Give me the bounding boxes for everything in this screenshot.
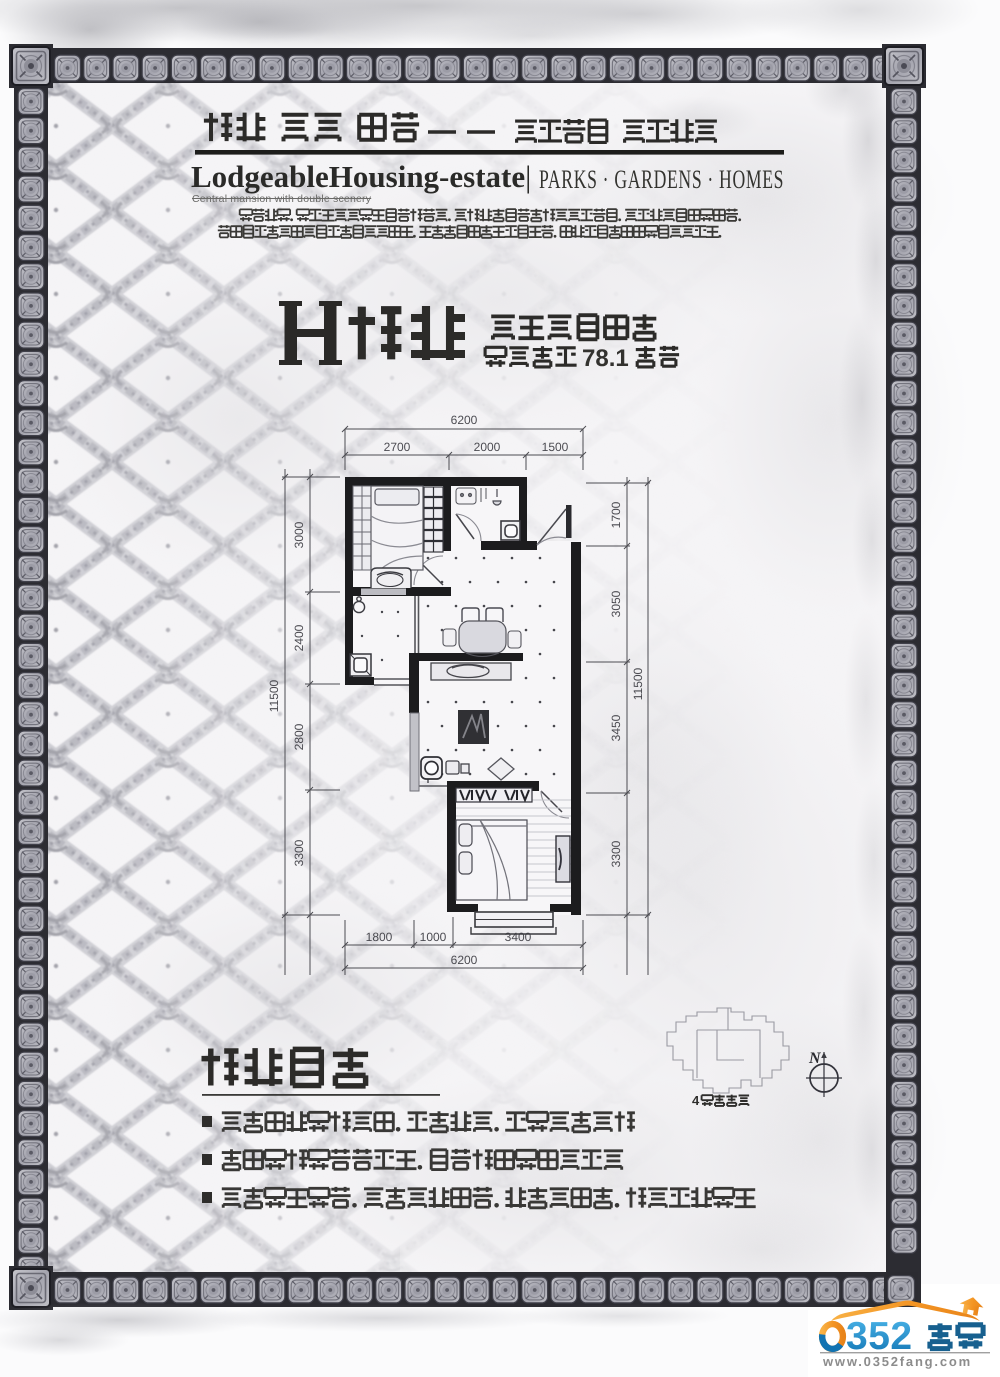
svg-text:www.0352fang.com: www.0352fang.com <box>822 1354 972 1369</box>
svg-text:352: 352 <box>846 1315 913 1358</box>
